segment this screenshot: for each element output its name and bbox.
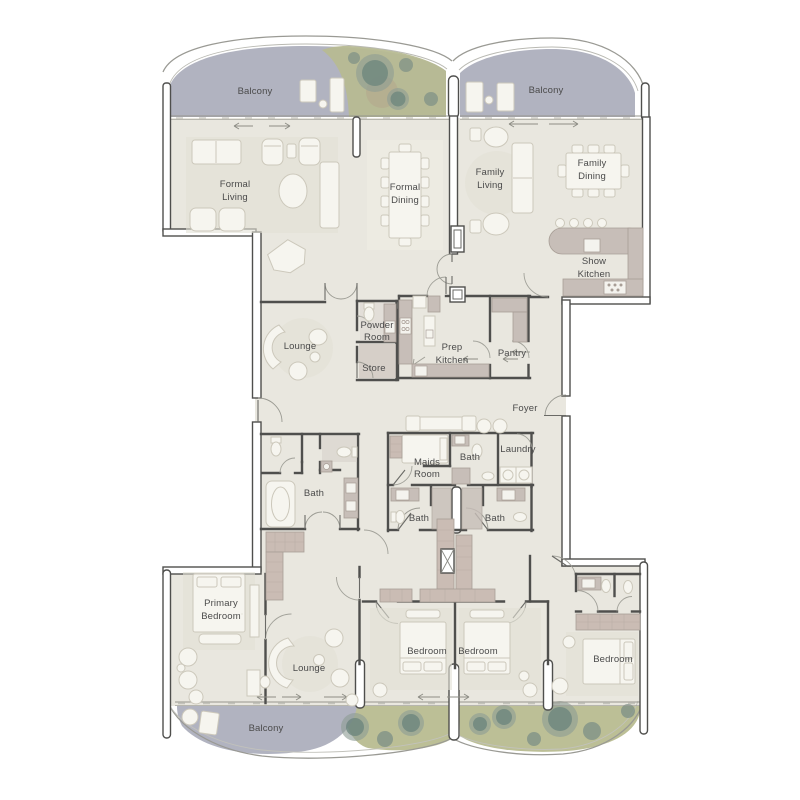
svg-text:Family: Family (476, 167, 505, 178)
svg-text:Family: Family (578, 158, 607, 169)
svg-text:Show: Show (582, 256, 606, 267)
svg-text:Pantry: Pantry (498, 348, 526, 359)
svg-text:Powder: Powder (360, 320, 393, 331)
svg-text:Bedroom: Bedroom (593, 654, 633, 665)
svg-text:Formal: Formal (390, 182, 420, 193)
svg-text:Living: Living (222, 192, 248, 203)
svg-text:Dining: Dining (391, 195, 419, 206)
svg-text:Bath: Bath (409, 513, 429, 524)
svg-text:Room: Room (414, 469, 440, 480)
svg-text:Bedroom: Bedroom (458, 646, 498, 657)
svg-text:Balcony: Balcony (249, 723, 284, 734)
svg-text:Kitchen: Kitchen (578, 269, 611, 280)
svg-text:Living: Living (477, 180, 503, 191)
svg-text:Foyer: Foyer (512, 403, 537, 414)
svg-text:Bedroom: Bedroom (201, 611, 241, 622)
svg-text:Bath: Bath (460, 452, 480, 463)
svg-text:Formal: Formal (220, 179, 250, 190)
svg-text:Lounge: Lounge (293, 663, 326, 674)
svg-text:Lounge: Lounge (284, 341, 317, 352)
svg-text:Store: Store (362, 363, 385, 374)
svg-text:Maids: Maids (414, 457, 440, 468)
svg-text:Balcony: Balcony (238, 86, 273, 97)
svg-text:Balcony: Balcony (529, 85, 564, 96)
svg-text:Prep: Prep (442, 342, 463, 353)
svg-text:Bath: Bath (304, 488, 324, 499)
svg-text:Primary: Primary (204, 598, 238, 609)
svg-text:Laundry: Laundry (500, 444, 535, 455)
svg-text:Kitchen: Kitchen (436, 355, 469, 366)
svg-text:Bath: Bath (485, 513, 505, 524)
svg-text:Dining: Dining (578, 171, 606, 182)
svg-text:Room: Room (364, 332, 390, 343)
svg-text:Bedroom: Bedroom (407, 646, 447, 657)
